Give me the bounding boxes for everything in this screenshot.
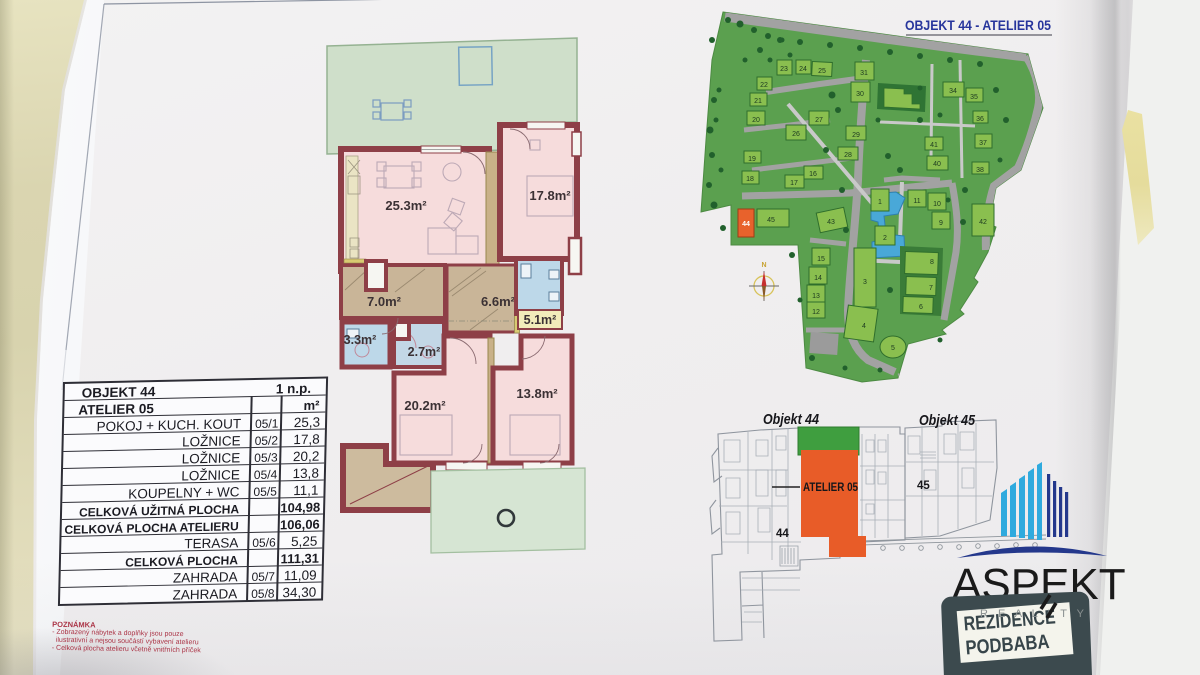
svg-text:38: 38 <box>976 167 984 174</box>
svg-text:22: 22 <box>760 82 768 89</box>
svg-text:13: 13 <box>812 293 820 300</box>
svg-text:4: 4 <box>862 323 866 330</box>
svg-text:30: 30 <box>856 91 864 98</box>
svg-text:R E A L I T Y: R E A L I T Y <box>980 608 1087 620</box>
svg-text:10: 10 <box>933 201 941 208</box>
svg-text:36: 36 <box>976 116 984 123</box>
svg-text:7: 7 <box>929 285 933 292</box>
svg-text:3: 3 <box>863 279 867 286</box>
svg-text:43: 43 <box>827 219 835 226</box>
svg-text:29: 29 <box>852 132 860 139</box>
svg-text:44: 44 <box>742 221 750 228</box>
svg-text:5: 5 <box>891 345 895 352</box>
svg-text:Objekt 45: Objekt 45 <box>919 413 976 429</box>
svg-text:35: 35 <box>970 94 978 101</box>
svg-text:40: 40 <box>933 161 941 168</box>
svg-text:N: N <box>761 262 766 269</box>
svg-text:16: 16 <box>809 171 817 178</box>
svg-text:Objekt 44: Objekt 44 <box>763 412 819 428</box>
svg-text:27: 27 <box>815 117 823 124</box>
svg-text:19: 19 <box>748 156 756 163</box>
svg-text:42: 42 <box>979 219 987 226</box>
svg-text:13.8m²: 13.8m² <box>516 386 558 401</box>
svg-text:6: 6 <box>919 304 923 311</box>
svg-text:3.3m²: 3.3m² <box>344 333 377 347</box>
svg-text:2.7m²: 2.7m² <box>408 345 441 359</box>
svg-text:34: 34 <box>949 88 957 95</box>
svg-text:OBJEKT 44 - ATELIER 05: OBJEKT 44 - ATELIER 05 <box>905 18 1051 33</box>
svg-text:37: 37 <box>979 140 987 147</box>
svg-text:8: 8 <box>930 259 934 266</box>
svg-text:23: 23 <box>780 66 788 73</box>
svg-text:31: 31 <box>860 70 868 77</box>
svg-text:24: 24 <box>799 66 807 73</box>
svg-text:5.1m²: 5.1m² <box>524 313 557 327</box>
svg-text:25.3m²: 25.3m² <box>385 198 427 213</box>
svg-text:2: 2 <box>883 235 887 242</box>
svg-text:45: 45 <box>917 480 930 492</box>
svg-text:17: 17 <box>790 180 798 187</box>
svg-text:7.0m²: 7.0m² <box>367 294 402 309</box>
svg-text:21: 21 <box>754 98 762 105</box>
svg-text:ATELIER 05: ATELIER 05 <box>803 482 859 494</box>
svg-text:14: 14 <box>814 275 822 282</box>
svg-text:17.8m²: 17.8m² <box>529 188 571 203</box>
svg-text:20: 20 <box>752 117 760 124</box>
svg-text:20.2m²: 20.2m² <box>404 398 446 413</box>
svg-text:11: 11 <box>913 198 920 205</box>
svg-text:1: 1 <box>878 199 882 206</box>
svg-text:45: 45 <box>767 217 775 224</box>
svg-text:6.6m²: 6.6m² <box>481 294 516 309</box>
svg-text:28: 28 <box>844 152 852 159</box>
svg-text:12: 12 <box>812 309 820 316</box>
svg-text:26: 26 <box>792 131 800 138</box>
svg-text:25: 25 <box>818 68 826 75</box>
svg-text:9: 9 <box>939 220 943 227</box>
svg-text:44: 44 <box>776 528 789 540</box>
svg-text:41: 41 <box>930 142 938 149</box>
svg-text:18: 18 <box>746 176 754 183</box>
svg-text:15: 15 <box>817 256 825 263</box>
